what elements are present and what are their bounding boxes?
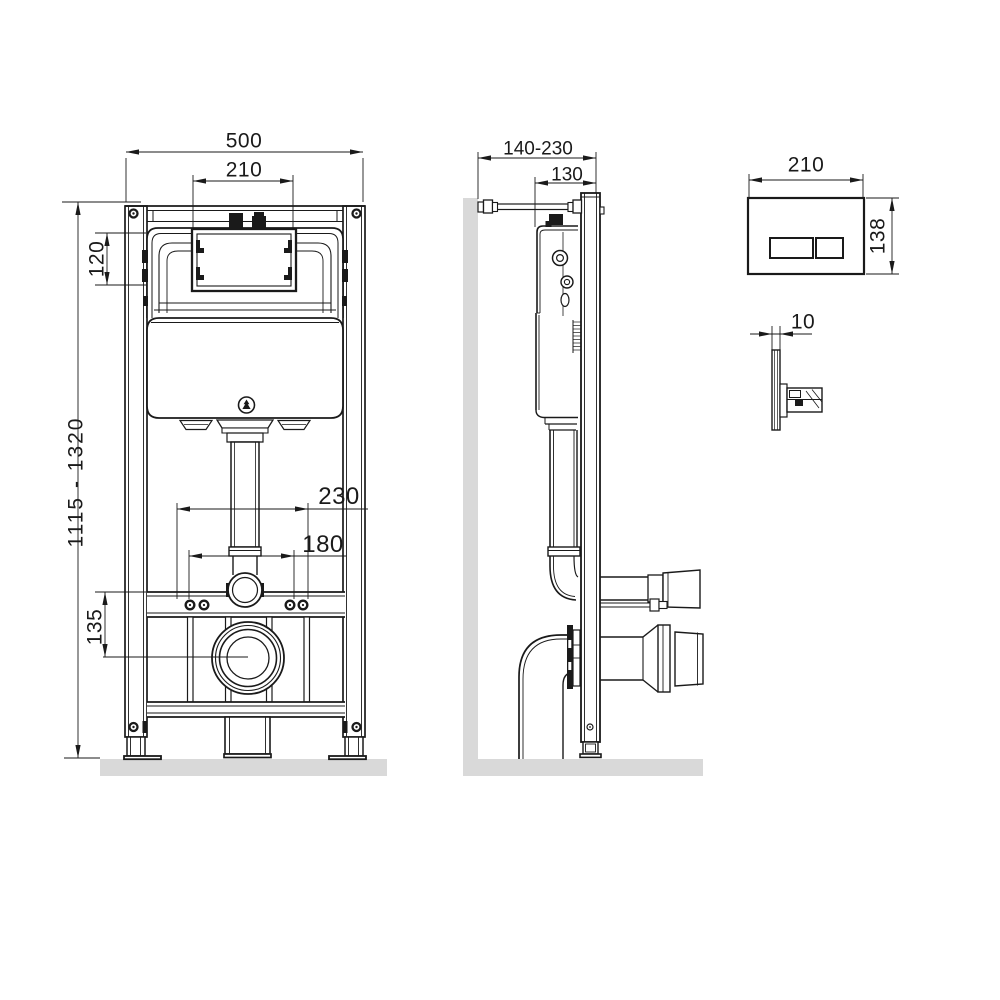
dim-label-plate-width: 210 bbox=[788, 155, 825, 176]
dim-label-wall-distance: 140-230 bbox=[503, 140, 573, 159]
cistern-front bbox=[142, 212, 348, 430]
cistern-side bbox=[535, 225, 581, 435]
bottom-drain-pipe bbox=[224, 717, 271, 758]
dim-label-frame-depth: 130 bbox=[551, 166, 583, 185]
dim-label-frame-width: 500 bbox=[226, 131, 263, 152]
flush-connector bbox=[600, 570, 700, 611]
dim-label-height-range: 1115 - 1320 bbox=[66, 417, 87, 548]
drain-elbow-side bbox=[519, 625, 581, 759]
floor-section-front bbox=[100, 759, 387, 776]
inspection-window bbox=[192, 229, 296, 291]
technical-drawing-page: 500 210 120 1115 - 1320 135 230 180 140-… bbox=[0, 0, 1000, 1000]
dim-label-fixing-outer: 230 bbox=[318, 485, 360, 509]
flush-pipe-side bbox=[548, 430, 580, 600]
front-view bbox=[62, 149, 387, 776]
floor-section-side bbox=[463, 759, 703, 776]
dim-label-fixing-inner: 180 bbox=[302, 533, 344, 557]
flush-pipe-front bbox=[217, 420, 273, 575]
wall-section bbox=[463, 198, 478, 759]
technical-drawing-svg bbox=[0, 0, 1000, 1000]
flush-plate-side bbox=[750, 326, 822, 430]
dim-label-outlet-height: 135 bbox=[85, 609, 106, 646]
flush-pipe-clamp bbox=[226, 573, 264, 607]
dim-plate-width bbox=[749, 174, 863, 197]
dim-label-window-width: 210 bbox=[226, 160, 263, 181]
flush-plate-body bbox=[748, 198, 864, 274]
dim-label-plate-thickness: 10 bbox=[791, 312, 815, 333]
flush-button-large bbox=[770, 238, 813, 258]
brand-logo-mark bbox=[239, 397, 255, 413]
side-view bbox=[463, 152, 703, 776]
dim-label-window-height: 120 bbox=[87, 241, 108, 278]
plate-mechanism-box bbox=[787, 388, 822, 412]
flush-button-small bbox=[816, 238, 843, 258]
wall-anchor-rod bbox=[478, 200, 582, 227]
bottom-crossbar bbox=[147, 702, 345, 717]
cistern-top-connectors bbox=[229, 212, 266, 228]
waste-connector bbox=[600, 625, 703, 692]
frame-rail-side bbox=[580, 193, 604, 757]
drain-outlet bbox=[212, 622, 284, 694]
dim-label-plate-height: 138 bbox=[868, 218, 889, 255]
